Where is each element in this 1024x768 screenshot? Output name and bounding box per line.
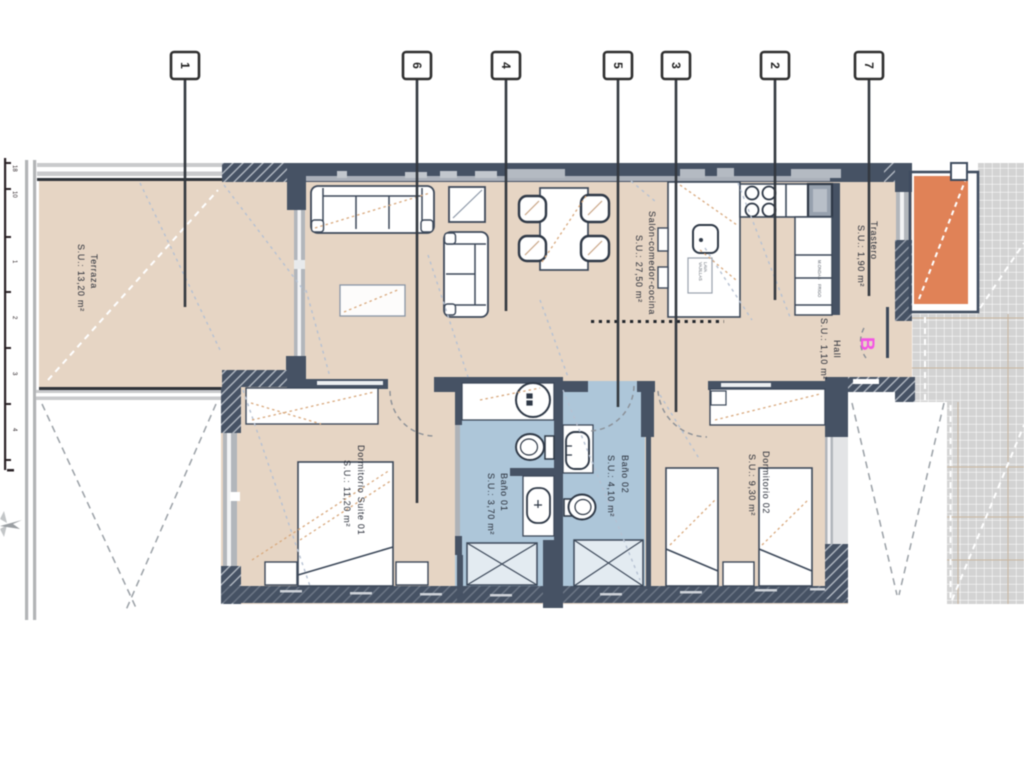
svg-text:S.U.: 27,50 m²: S.U.: 27,50 m² <box>634 235 644 303</box>
svg-text:B: B <box>856 337 877 351</box>
svg-text:Trastero: Trastero <box>869 221 879 260</box>
svg-text:S.U.: 9,30 m²: S.U.: 9,30 m² <box>747 454 757 516</box>
svg-text:VAJILLAS: VAJILLAS <box>698 262 703 281</box>
svg-text:Terraza: Terraza <box>89 254 99 289</box>
svg-text:Dormitorio Suite 01: Dormitorio Suite 01 <box>356 445 366 535</box>
svg-text:1: 1 <box>178 62 192 69</box>
svg-text:S.U.: 4,10 m²: S.U.: 4,10 m² <box>606 455 616 517</box>
svg-text:Hall: Hall <box>832 340 842 358</box>
svg-text:M.ONDAS: M.ONDAS <box>817 260 822 280</box>
svg-text:Dormitorio 02: Dormitorio 02 <box>761 451 771 514</box>
svg-text:FRIGO: FRIGO <box>817 284 822 298</box>
svg-text:2: 2 <box>768 62 782 69</box>
svg-text:S.U.: 11,20 m²: S.U.: 11,20 m² <box>342 460 352 527</box>
svg-text:S.U.: 13,20 m²: S.U.: 13,20 m² <box>76 244 86 312</box>
svg-text:Baño 01: Baño 01 <box>499 473 509 511</box>
svg-text:10: 10 <box>11 191 17 198</box>
svg-text:7: 7 <box>862 62 876 69</box>
svg-text:6: 6 <box>410 62 424 69</box>
svg-text:Salón-comedor-cocina: Salón-comedor-cocina <box>647 211 657 315</box>
svg-text:18: 18 <box>11 165 17 172</box>
svg-text:Baño 02: Baño 02 <box>620 455 630 493</box>
svg-text:3: 3 <box>669 62 683 69</box>
svg-text:4: 4 <box>499 62 513 69</box>
svg-text:S.U.: 1,90 m²: S.U.: 1,90 m² <box>856 225 866 287</box>
svg-text:5: 5 <box>611 62 625 69</box>
svg-text:S.U.: 1,10 m²: S.U.: 1,10 m² <box>819 318 829 380</box>
svg-text:S.U.: 3,70 m²: S.U.: 3,70 m² <box>486 473 496 535</box>
